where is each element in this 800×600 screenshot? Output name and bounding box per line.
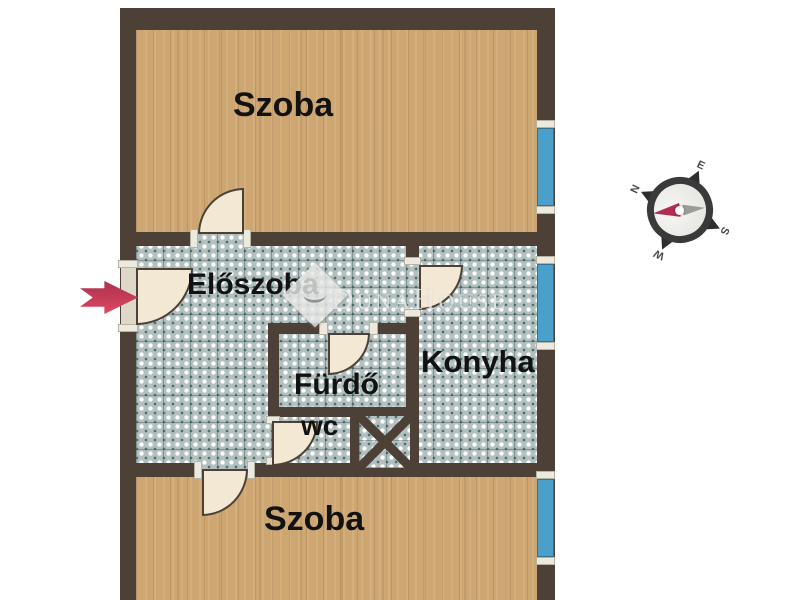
watermark-text: DunaHouse [331,281,508,317]
floor-plan: Szoba Előszoba Konyha Fürdő wc Szoba Dun… [0,0,800,600]
door-jamb [369,322,378,335]
compass-needle-pivot [675,205,685,215]
compass-needle-gray [682,202,705,215]
wall-top [120,8,555,30]
wall-room-bottom-north-a [120,463,202,477]
window-jamb [536,342,555,350]
compass-rose: N E S W [628,158,732,262]
room-label-wc: wc [301,410,338,442]
door-jamb [404,257,421,265]
door-jamb [118,324,138,332]
watermark-swoosh-icon [304,288,326,303]
window-jamb [536,471,555,479]
room-label-szoba-bottom: Szoba [264,500,364,539]
door-jamb [190,229,198,248]
room-label-konyha: Konyha [421,344,535,380]
door-jamb [194,461,202,479]
window-kitchen [537,264,554,342]
window-jamb [536,206,555,214]
window-jamb [536,557,555,565]
door-jamb [243,229,251,248]
window-room-top [537,128,554,206]
room-label-szoba-top: Szoba [233,86,333,125]
door-jamb [319,322,328,335]
window-jamb [536,120,555,128]
wall-room-top-south-a [120,232,198,246]
door-jamb [118,260,138,268]
door-jamb [247,461,255,479]
window-jamb [536,256,555,264]
shaft-floor [359,416,410,468]
window-room-bottom [537,479,554,557]
floor-room-top [136,30,537,232]
wall-room-top-south-b [243,232,537,246]
shaft-box [350,407,419,477]
room-label-furdo: Fürdő [294,368,379,402]
